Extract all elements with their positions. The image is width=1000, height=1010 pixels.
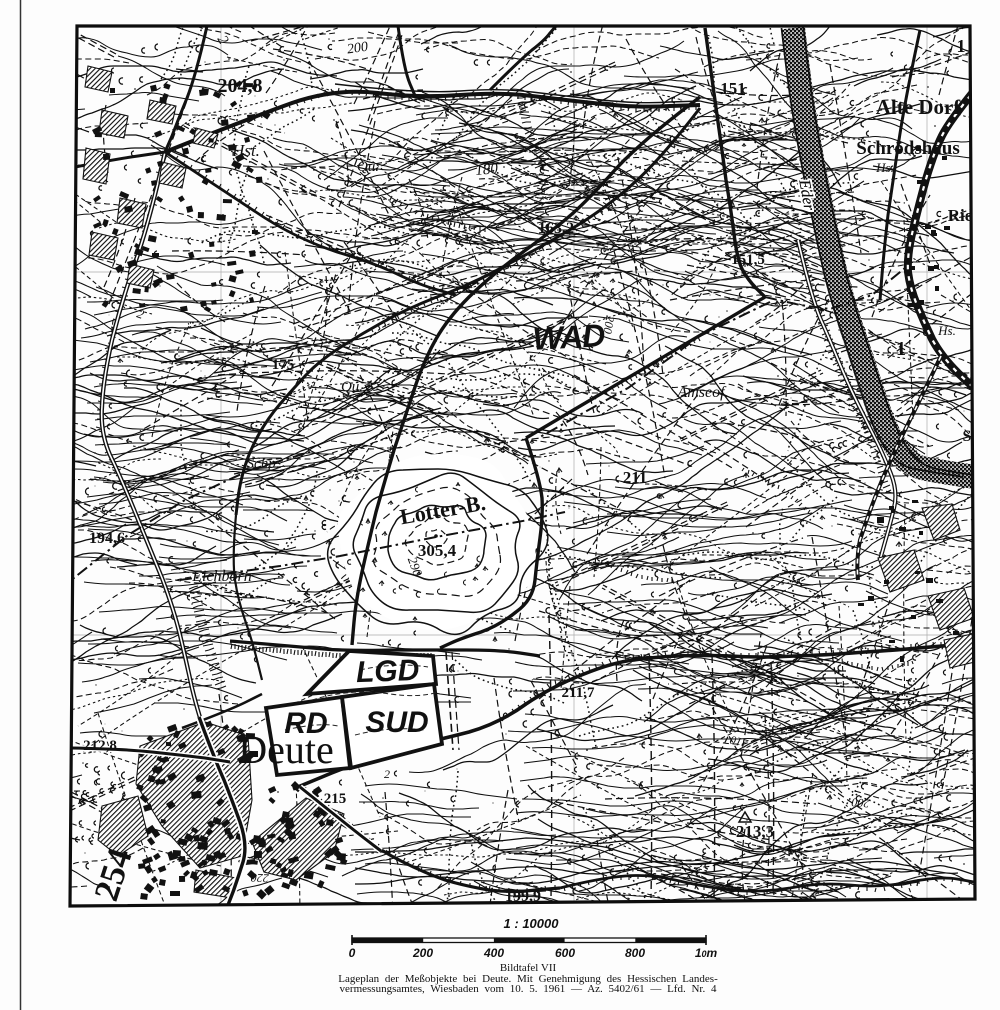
svg-text:204,8: 204,8 xyxy=(218,75,263,97)
svg-text:151: 151 xyxy=(720,79,746,98)
svg-text:Rie: Rie xyxy=(948,206,973,225)
svg-text:Eichborn: Eichborn xyxy=(191,568,252,585)
svg-text:Hst.: Hst. xyxy=(231,141,260,160)
svg-text:400: 400 xyxy=(483,946,504,960)
svg-text:1: 1 xyxy=(896,338,906,360)
svg-text:WAD: WAD xyxy=(532,317,606,357)
svg-text:Alte Dorf: Alte Dorf xyxy=(876,95,962,119)
svg-text:10m: 10m xyxy=(695,946,718,960)
svg-text:800: 800 xyxy=(625,946,645,960)
svg-text:RD: RD xyxy=(284,707,327,740)
svg-text:220: 220 xyxy=(251,871,269,886)
svg-text:S: S xyxy=(963,428,972,445)
svg-text:199,9: 199,9 xyxy=(505,888,541,905)
svg-text:211: 211 xyxy=(623,468,648,487)
svg-text:151,5: 151,5 xyxy=(731,252,765,268)
svg-text:211,7: 211,7 xyxy=(562,685,595,701)
svg-text:305,4: 305,4 xyxy=(418,541,457,560)
svg-text:Hs.: Hs. xyxy=(937,323,956,338)
svg-text:163,2: 163,2 xyxy=(538,220,574,237)
svg-text:vermessungsamtes, Wiesbaden vo: vermessungsamtes, Wiesbaden vom 10. 5. 1… xyxy=(340,983,717,995)
svg-text:0: 0 xyxy=(349,946,356,960)
svg-text:LGD: LGD xyxy=(355,654,419,689)
svg-text:1: 1 xyxy=(957,36,966,56)
svg-text:Qu.: Qu. xyxy=(357,159,379,175)
svg-text:215: 215 xyxy=(324,791,347,807)
svg-text:212,8: 212,8 xyxy=(83,738,117,754)
svg-text:200: 200 xyxy=(346,40,369,58)
svg-text:2: 2 xyxy=(384,767,390,781)
svg-text:Hs.: Hs. xyxy=(875,160,894,175)
svg-text:Amseof.: Amseof. xyxy=(676,384,728,401)
svg-text:180: 180 xyxy=(475,161,499,179)
svg-text:Schrödshaus: Schrödshaus xyxy=(856,138,960,159)
svg-text:Schp.: Schp. xyxy=(247,456,280,472)
svg-text:Qu.: Qu. xyxy=(341,379,363,395)
svg-text:175: 175 xyxy=(272,357,295,373)
svg-text:200: 200 xyxy=(412,946,433,960)
svg-text:SUD: SUD xyxy=(365,706,428,739)
svg-text:194,6: 194,6 xyxy=(89,530,125,547)
svg-text:600: 600 xyxy=(555,946,575,960)
svg-text:213,3: 213,3 xyxy=(736,822,774,841)
svg-text:200: 200 xyxy=(851,795,870,811)
svg-text:1 : 10000: 1 : 10000 xyxy=(504,916,560,931)
